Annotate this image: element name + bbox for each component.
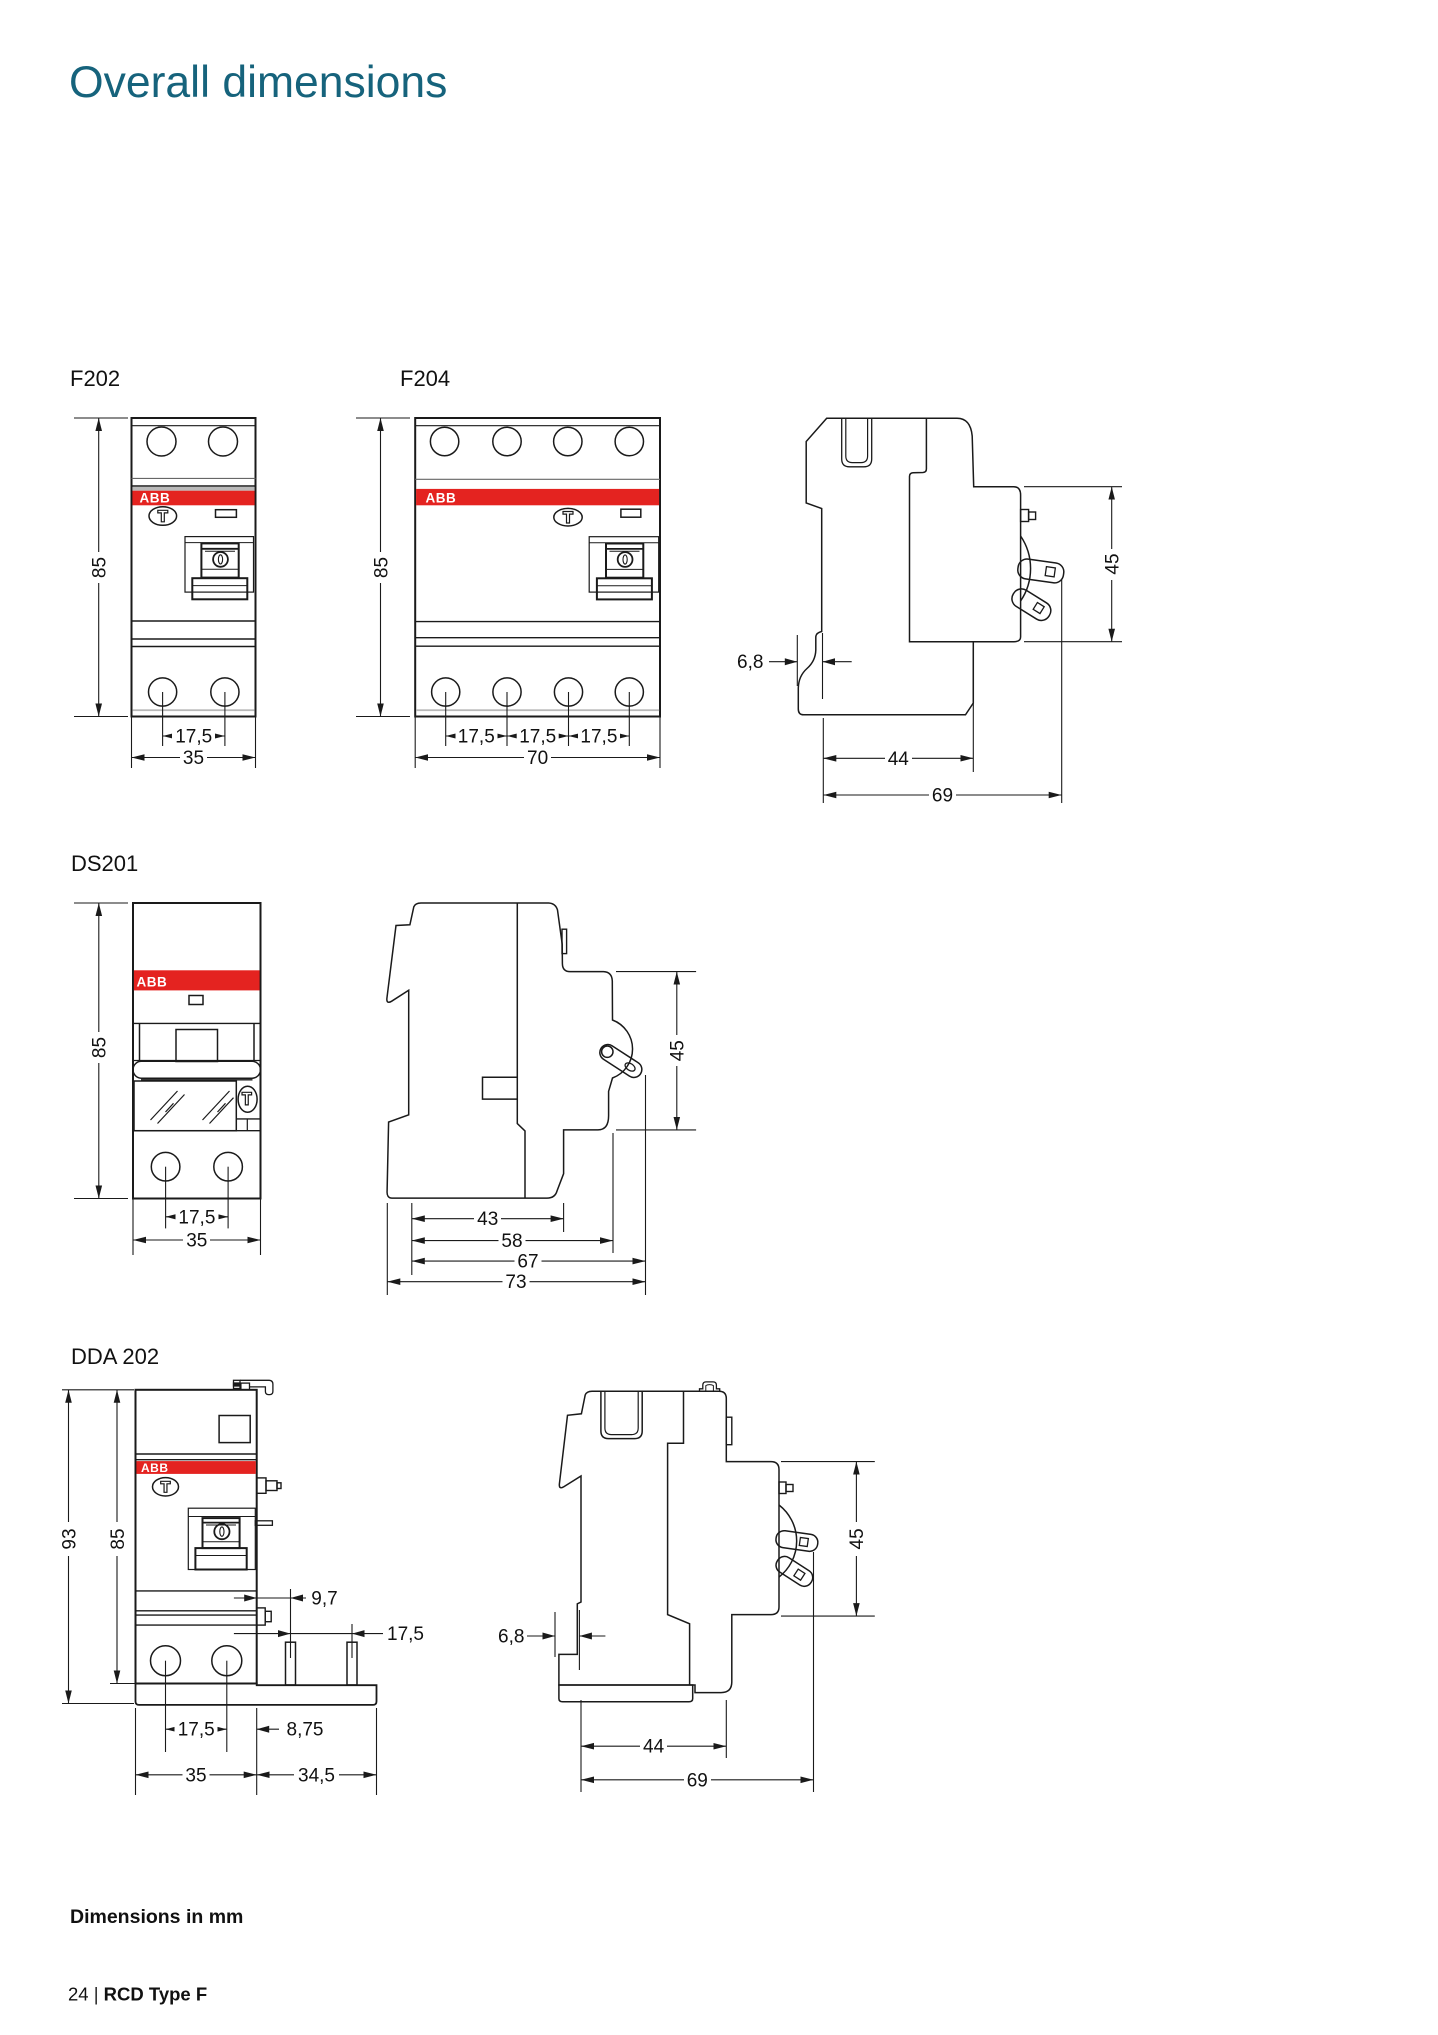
svg-text:ABB: ABB	[141, 1461, 169, 1475]
svg-text:6,8: 6,8	[737, 652, 763, 673]
svg-text:34,5: 34,5	[298, 1765, 335, 1786]
svg-text:8,75: 8,75	[287, 1720, 324, 1741]
svg-text:67: 67	[517, 1252, 538, 1273]
svg-text:ABB: ABB	[137, 975, 168, 990]
svg-text:17,5: 17,5	[458, 727, 495, 748]
svg-text:17,5: 17,5	[519, 727, 556, 748]
svg-text:70: 70	[527, 748, 548, 769]
svg-text:17,5: 17,5	[580, 727, 617, 748]
svg-text:43: 43	[477, 1209, 498, 1230]
svg-text:DS201: DS201	[71, 851, 138, 876]
svg-text:ABB: ABB	[426, 491, 457, 506]
svg-text:85: 85	[108, 1528, 129, 1549]
svg-text:45: 45	[668, 1040, 689, 1061]
svg-text:Overall dimensions: Overall dimensions	[69, 58, 447, 107]
svg-text:9,7: 9,7	[311, 1589, 337, 1610]
svg-text:35: 35	[185, 1765, 206, 1786]
svg-text:ABB: ABB	[140, 491, 171, 506]
svg-text:F204: F204	[400, 366, 450, 391]
svg-text:44: 44	[643, 1737, 665, 1758]
svg-text:85: 85	[90, 1037, 111, 1058]
svg-text:85: 85	[372, 557, 393, 578]
svg-text:85: 85	[90, 557, 111, 578]
svg-text:93: 93	[60, 1528, 81, 1549]
svg-text:44: 44	[888, 749, 910, 770]
svg-text:45: 45	[1103, 553, 1124, 574]
svg-text:35: 35	[186, 1231, 207, 1252]
svg-text:17,5: 17,5	[175, 727, 212, 748]
svg-text:45: 45	[847, 1528, 868, 1549]
svg-text:DDA 202: DDA 202	[71, 1344, 159, 1369]
svg-text:35: 35	[183, 748, 204, 769]
svg-text:Dimensions in mm: Dimensions in mm	[70, 1906, 243, 1928]
svg-text:58: 58	[501, 1231, 522, 1252]
svg-text:24 | RCD Type F: 24 | RCD Type F	[68, 1984, 207, 2005]
svg-text:17,5: 17,5	[178, 1720, 215, 1741]
svg-text:F202: F202	[70, 366, 120, 391]
svg-text:69: 69	[932, 786, 953, 807]
svg-text:6,8: 6,8	[498, 1627, 524, 1648]
svg-text:73: 73	[505, 1272, 526, 1293]
svg-text:69: 69	[687, 1770, 708, 1791]
svg-text:17,5: 17,5	[178, 1207, 215, 1228]
svg-text:17,5: 17,5	[387, 1624, 424, 1645]
